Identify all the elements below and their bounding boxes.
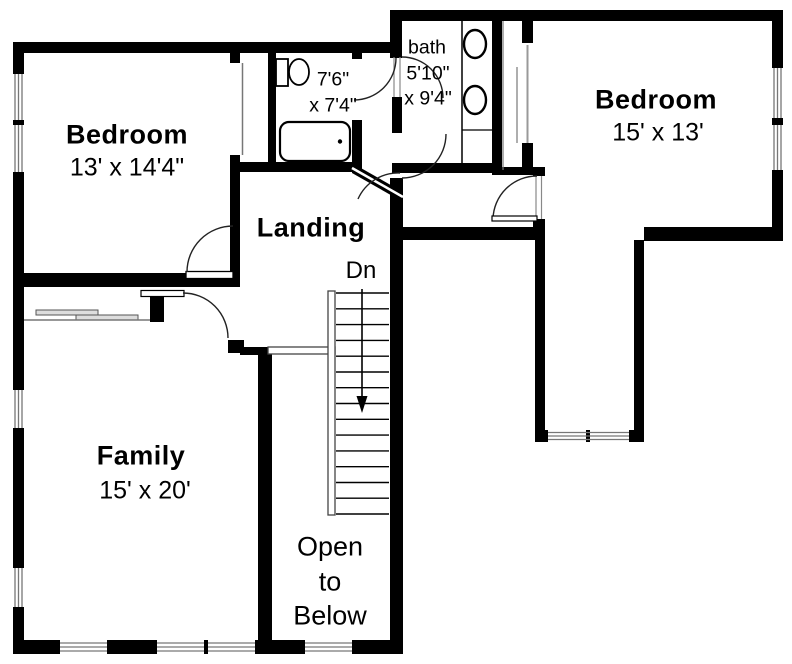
open-to-below-line1: Open (297, 532, 363, 563)
door-arc (354, 58, 396, 100)
right-wall (772, 10, 783, 68)
bathroom-east-wall (352, 120, 362, 162)
right-wing-south-wall (390, 227, 545, 240)
sliding-closet-door (36, 310, 98, 315)
bedroom-right-dims: 15' x 13' (612, 119, 704, 148)
open-to-below-line3: Below (293, 601, 367, 632)
bedroom-right-name: Bedroom (595, 85, 717, 116)
landing-railing (268, 347, 335, 354)
right-wall-mullion (772, 118, 783, 125)
alcove-left-wall (535, 240, 545, 442)
door-arc (187, 226, 233, 272)
door-leaf (186, 272, 233, 279)
bath-south-wall (392, 163, 502, 173)
bath-dims-line2: x 9'4" (404, 88, 452, 111)
bedroom-right-closet-wall (522, 18, 533, 43)
door-leaf (141, 291, 184, 297)
bathroom-south-wall (230, 162, 362, 172)
family-name: Family (97, 441, 186, 472)
bathroom-west-wall (268, 52, 276, 162)
bath-west-wall (392, 97, 402, 133)
stairwell-right-wall (390, 178, 403, 653)
alcove-bottom-wall (535, 430, 548, 442)
bottom-wall-mullion (204, 640, 208, 654)
bedroom-right-door-wall (533, 170, 545, 176)
sink (464, 30, 486, 58)
alcove-bottom-wall (629, 430, 644, 442)
door-arc (493, 176, 537, 219)
family-dims: 15' x 20' (99, 477, 191, 506)
left-wall (13, 42, 24, 74)
bedroom-left-closet-wall (230, 42, 240, 63)
stairs-down-label: Dn (346, 257, 377, 285)
stair-railing (328, 291, 335, 515)
top-wall-connector (390, 10, 402, 58)
bottom-wall (13, 640, 60, 654)
bath-name: bath (408, 37, 446, 60)
floor-plan: Bedroom 13' x 14'4" 7'6" x 7'4" bath 5'1… (0, 0, 792, 664)
bedroom-left-dims: 13' x 14'4" (70, 154, 184, 183)
right-wing-south-wall (644, 227, 783, 241)
left-wall-mullion (13, 120, 24, 125)
bedroom-left-name: Bedroom (66, 120, 188, 151)
stairs-down-arrow (357, 289, 368, 413)
bath-dims-line1: 5'10" (406, 63, 449, 86)
bedroom-left-east-wall (230, 155, 240, 287)
interior-walls (13, 18, 545, 640)
family-east-wall (258, 353, 272, 640)
sink (464, 86, 486, 114)
bath-bedroom-divider-wall (492, 21, 502, 173)
door-leaf (492, 216, 537, 221)
toilet-tank (276, 59, 288, 86)
door-arc (183, 293, 228, 338)
alcove-right-wall (634, 240, 644, 442)
bottom-wall (255, 640, 305, 654)
bottom-wall (107, 640, 157, 654)
bathroom-dims-line2: x 7'4" (309, 95, 357, 118)
bathroom-east-wall (352, 52, 362, 59)
railings (268, 291, 335, 515)
top-wall-right (390, 10, 783, 21)
bathroom-dims-line1: 7'6" (317, 69, 349, 92)
open-to-below-line2: to (319, 567, 342, 598)
bathtub-drain (338, 139, 342, 143)
landing-name: Landing (257, 213, 365, 244)
toilet-bowl (289, 59, 309, 85)
top-wall-left (13, 42, 397, 53)
left-wall (13, 428, 24, 568)
